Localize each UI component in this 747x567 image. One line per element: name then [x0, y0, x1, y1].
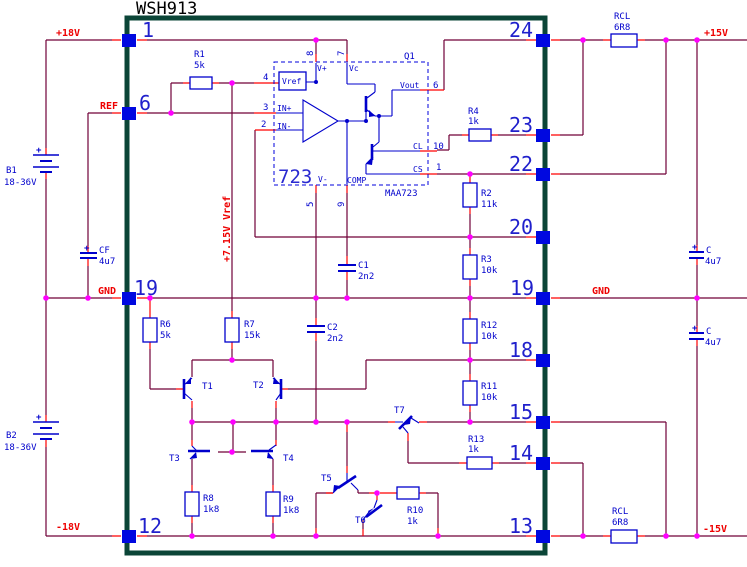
b1-value: 18-36V: [4, 178, 37, 188]
t4-label: T4: [283, 454, 294, 464]
pin-24-square: [536, 34, 550, 47]
r10-name: R10: [407, 506, 423, 516]
ic-pin-vout: Vout: [400, 81, 419, 90]
net-plus15v: +15V: [704, 28, 728, 39]
regulator-ic-723: Vref 723 MAA723 Q1 V+ Vc Vout CL CS V- C…: [261, 51, 444, 207]
r9-body: [266, 492, 280, 516]
r2-value: 11k: [481, 200, 498, 210]
pin-14-number: 14: [509, 441, 533, 465]
vref-block-label: Vref: [282, 77, 301, 86]
pin-20-square: [536, 231, 550, 244]
ic-num-9: 9: [337, 202, 347, 207]
c-bot-name: C: [706, 327, 711, 337]
b2-plus-icon: +: [36, 413, 42, 423]
r6-value: 5k: [160, 331, 171, 341]
ic-pin-cl: CL: [413, 142, 423, 151]
pin-23-number: 23: [509, 113, 533, 137]
rcl-top-name: RCL: [614, 12, 630, 22]
pin-1-number: 1: [142, 18, 154, 42]
ic-num-2: 2: [261, 120, 266, 130]
r4-name: R4: [468, 107, 479, 117]
r12-body: [463, 319, 477, 343]
t7-label: T7: [394, 406, 405, 416]
r1-body: [190, 77, 212, 89]
c-top-name: C: [706, 246, 711, 256]
schematic-canvas: WSH913 Vref 723 MAA723 Q1 V+ Vc Vout CL …: [0, 0, 747, 567]
b1-plus-icon: +: [36, 146, 42, 156]
net-gnd-left: GND: [98, 286, 116, 297]
ic-num-4: 4: [263, 73, 268, 83]
ic-pin-comp: COMP: [347, 176, 366, 185]
ic-num-8: 8: [306, 51, 316, 56]
pin-23-square: [536, 129, 550, 142]
b1-name: B1: [6, 166, 17, 176]
net-vref-rail: +7.15V Vref: [222, 196, 233, 262]
t4-emitter-arrow-icon: [267, 452, 273, 459]
t1-label: T1: [202, 382, 213, 392]
r7-value: 15k: [244, 331, 261, 341]
r3-name: R3: [481, 255, 492, 265]
r6-name: R6: [160, 320, 171, 330]
r13-name: R13: [468, 435, 484, 445]
r10-body: [397, 487, 419, 499]
t3-emitter-arrow-icon: [190, 452, 197, 459]
r7-name: R7: [244, 320, 255, 330]
r13-value: 1k: [468, 445, 479, 455]
net-plus18v: +18V: [56, 28, 80, 39]
c2-name: C2: [327, 323, 338, 333]
limit-transistor-emitter-arrow-icon: [366, 157, 373, 165]
pin-22-square: [536, 168, 550, 181]
r2-name: R2: [481, 189, 492, 199]
r11-name: R11: [481, 382, 497, 392]
c1-plates: [338, 265, 356, 271]
ic-pin-inminus: IN-: [277, 122, 291, 131]
ic-pin-cs: CS: [413, 165, 423, 174]
pin-1-square: [122, 34, 136, 47]
ic-transistor-bars: [366, 96, 372, 160]
pin-15-number: 15: [509, 400, 533, 424]
t5-label: T5: [321, 474, 332, 484]
c-bot-value: 4u7: [705, 338, 721, 348]
b2-value: 18-36V: [4, 443, 37, 453]
c1-value: 2n2: [358, 272, 374, 282]
r2-body: [463, 183, 477, 207]
r12-name: R12: [481, 321, 497, 331]
pin-6-number: 6: [139, 91, 151, 115]
t5-arrow-icon: [333, 485, 340, 493]
pass-transistor-emitter-arrow-icon: [369, 110, 375, 117]
cf-plus-icon: +: [84, 244, 90, 254]
ic-pin-vplus: V+: [317, 64, 327, 73]
ic-num-1: 1: [436, 163, 441, 173]
c-top-value: 4u7: [705, 257, 721, 267]
c2-plates: [307, 326, 325, 332]
pin-12-square: [122, 530, 136, 543]
c2-value: 2n2: [327, 334, 343, 344]
rcl-top-body: [611, 34, 637, 47]
r1-value: 5k: [194, 61, 205, 71]
transistor-bars: [184, 379, 412, 517]
cf-name: CF: [99, 246, 110, 256]
r10-value: 1k: [407, 517, 418, 527]
rcl-bot-name: RCL: [612, 507, 628, 517]
r8-value: 1k8: [203, 505, 219, 515]
ic-pin-vc: Vc: [349, 64, 359, 73]
batteries: + B1 18-36V + B2 18-36V: [4, 146, 59, 453]
pin-19-left-number: 19: [134, 276, 158, 300]
ic-designator: Q1: [404, 52, 415, 62]
net-gnd-right: GND: [592, 286, 610, 297]
c-top-plus-icon: +: [692, 243, 698, 253]
r13-body: [467, 457, 492, 469]
pin-24-number: 24: [509, 18, 533, 42]
pin-22-number: 22: [509, 152, 533, 176]
pin-13-square: [536, 530, 550, 543]
t1-pnp-arrow-icon: [185, 377, 191, 384]
rcl-top-value: 6R8: [614, 23, 630, 33]
pin-13-number: 13: [509, 514, 533, 538]
net-minus15v: -15V: [703, 524, 727, 535]
c1-name: C1: [358, 261, 369, 271]
r7-body: [225, 318, 239, 342]
module-title: WSH913: [136, 0, 197, 19]
pin-12-number: 12: [138, 514, 162, 538]
ic-num-5: 5: [306, 202, 316, 207]
r4-value: 1k: [468, 117, 479, 127]
ic-pin-vminus: V-: [318, 175, 328, 184]
t3-label: T3: [169, 454, 180, 464]
r11-value: 10k: [481, 393, 498, 403]
module-outline: [127, 18, 545, 553]
net-minus18v: -18V: [56, 522, 80, 533]
r3-body: [463, 255, 477, 279]
t6-label: T6: [355, 516, 366, 526]
ic-label-723: 723: [278, 166, 312, 188]
cf-value: 4u7: [99, 257, 115, 267]
net-ref: REF: [100, 101, 118, 112]
rcl-bot-body: [611, 530, 637, 543]
pin-6-square: [122, 107, 136, 120]
t2-label: T2: [253, 381, 264, 391]
r1-name: R1: [194, 50, 205, 60]
pin-20-number: 20: [509, 215, 533, 239]
pin-18-number: 18: [509, 338, 533, 362]
ic-num-10: 10: [433, 142, 444, 152]
ic-num-3: 3: [263, 103, 268, 113]
r11-body: [463, 381, 477, 405]
pin-18-square: [536, 354, 550, 367]
pin-14-square: [536, 457, 550, 470]
pin-15-square: [536, 416, 550, 429]
opamp-triangle: [303, 100, 338, 142]
pin-19-right-number: 19: [510, 276, 534, 300]
b2-name: B2: [6, 431, 17, 441]
ic-pin-inplus: IN+: [277, 104, 292, 113]
wsh913-schematic: WSH913 Vref 723 MAA723 Q1 V+ Vc Vout CL …: [0, 0, 747, 567]
ic-part-number: MAA723: [385, 189, 418, 199]
rcl-bot-value: 6R8: [612, 518, 628, 528]
r4-body: [469, 129, 491, 141]
capacitors: C1 2n2 C2 2n2 + CF 4u7 + C 4u7 + C 4u7: [80, 243, 721, 348]
r12-value: 10k: [481, 332, 498, 342]
ic-num-7: 7: [337, 51, 347, 56]
transistor-leads: [184, 378, 419, 520]
r3-value: 10k: [481, 266, 498, 276]
r6-body: [143, 318, 157, 342]
ic-num-6: 6: [433, 81, 438, 91]
c-bot-plus-icon: +: [692, 324, 698, 334]
r8-body: [185, 492, 199, 516]
r9-value: 1k8: [283, 506, 299, 516]
pin-19-right-square: [536, 292, 550, 305]
t2-pnp-arrow-icon: [273, 377, 280, 384]
r9-name: R9: [283, 495, 294, 505]
r8-name: R8: [203, 494, 214, 504]
wires-outside-right: [560, 40, 747, 536]
